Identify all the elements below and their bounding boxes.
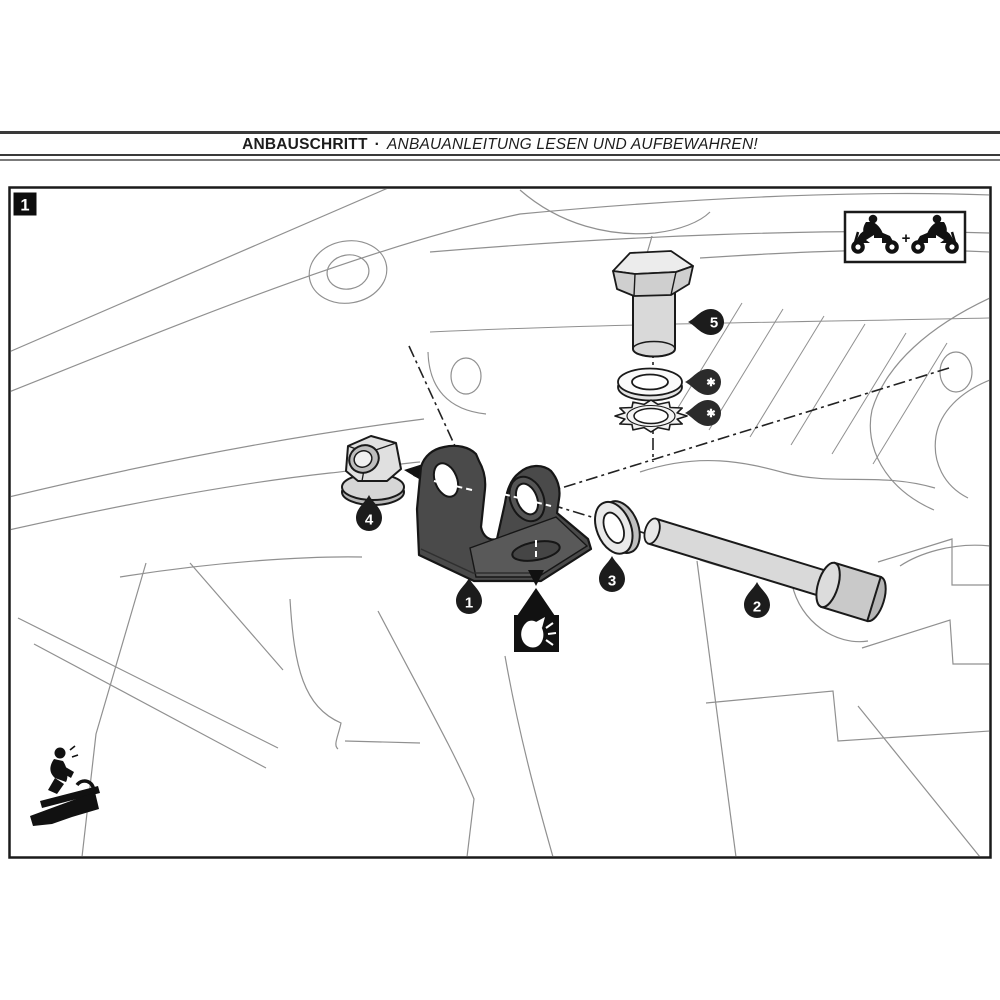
label-text: 1 — [465, 595, 473, 612]
rider-pair-box: + — [845, 212, 965, 262]
instruction-page: ANBAUSCHRITT·ANBAUANLEITUNG LESEN UND AU… — [0, 0, 1000, 1000]
assembly-diagram: 1 2 3 4 5 — [0, 0, 1000, 1000]
label-text: ✱ — [706, 408, 715, 420]
plus-sign: + — [902, 230, 911, 247]
flange-nut-part — [342, 436, 404, 505]
step-badge: 1 — [14, 193, 37, 216]
label-text: ✱ — [706, 377, 715, 389]
flat-washer-part — [618, 369, 682, 401]
step-number: 1 — [20, 197, 29, 215]
label-text: 4 — [365, 512, 374, 529]
label-text: 3 — [608, 573, 616, 590]
label-text: 5 — [710, 315, 718, 332]
label-text: 2 — [753, 599, 761, 616]
